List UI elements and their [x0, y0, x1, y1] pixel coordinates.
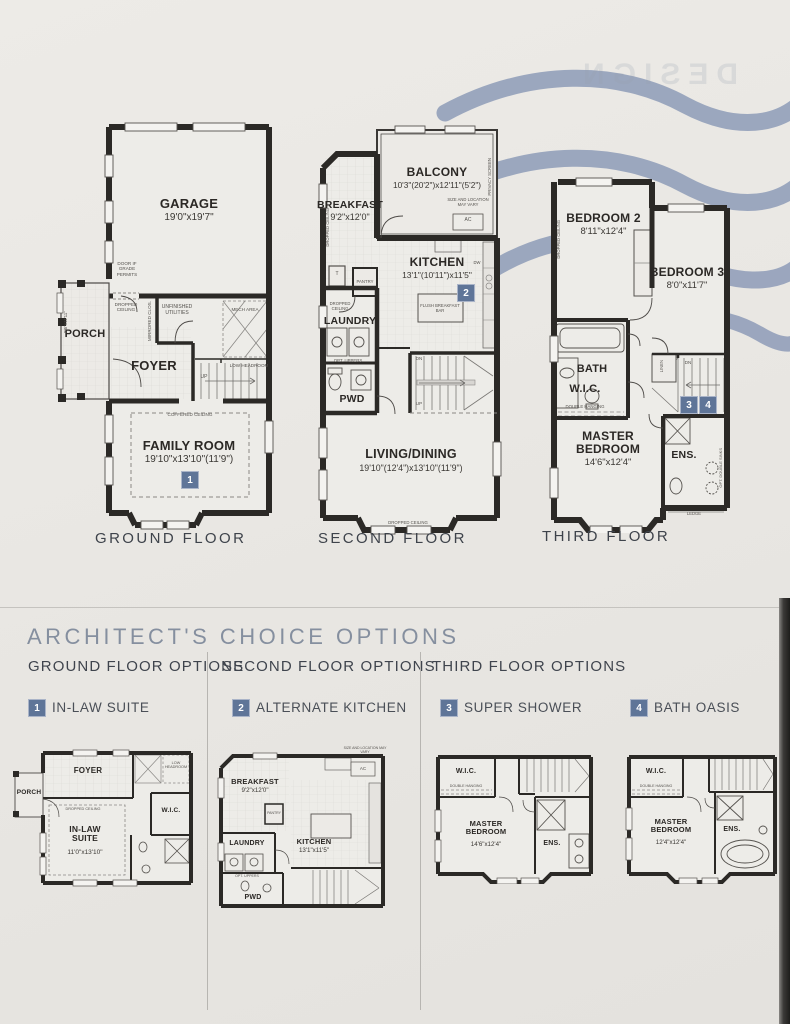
ground-floor-label: GROUND FLOOR [95, 530, 246, 547]
ground-floor-plan: GARAGE 19'0"x19'7" DOOR IF GRADE PERMITS… [55, 113, 290, 537]
altk-pantry-label: PANTRY [261, 811, 287, 815]
dn-note: DN [680, 360, 696, 365]
option-item-3-badge: 3 [440, 699, 458, 717]
inlaw-suite-plan: PORCH FOYER LOW HEADROOM DROPPED CEILING… [13, 743, 198, 893]
t-closet-label: T [331, 272, 343, 278]
mirrored-closet-note: MIRRORED CLOS. [147, 301, 152, 341]
dn-note: DN [411, 356, 427, 361]
opt-uppers-note: OPT. UPPERS [325, 358, 371, 363]
option-item-4-badge: 4 [630, 699, 648, 717]
third-options-header: THIRD FLOOR OPTIONS [432, 658, 626, 675]
ac-label: AC [453, 218, 483, 224]
bo-master-dims: 12'4"x12'4" [639, 840, 703, 847]
inlaw-suite-dims: 11'0"x13'10" [45, 849, 125, 856]
double-hanging-note: DOUBLE HANGING [556, 404, 614, 409]
ss-master-label: MASTER BEDROOM [455, 820, 517, 836]
mech-area-note: MECH AREA [225, 307, 265, 312]
option-item-1-label: IN-LAW SUITE [52, 700, 149, 715]
second-options-header: SECOND FLOOR OPTIONS [222, 658, 436, 675]
living-dining-label: LIVING/DINING [325, 448, 497, 462]
garage-dims: 19'0"x19'7" [129, 213, 249, 224]
unfinished-utilities-note: UNFINISHED UTILITIES [157, 305, 197, 317]
option-item-1-badge: 1 [28, 699, 46, 717]
option-item-3-label: SUPER SHOWER [464, 700, 582, 715]
up-note: UP [196, 375, 212, 381]
super-shower-drawing [423, 742, 598, 884]
altk-breakfast-label: BREAKFAST [221, 778, 289, 786]
ledge-note: LEDGE [674, 512, 714, 517]
bleed-through-text: DESIGN [575, 58, 738, 92]
coffered-ceiling-note: COFFERED CEILING [147, 412, 233, 417]
inlaw-porch-label: PORCH [15, 789, 43, 796]
option-item-2-label: ALTERNATE KITCHEN [256, 700, 407, 715]
bedroom3-dims: 8'0"x11'7" [646, 281, 728, 291]
option-3-badge: 3 [680, 396, 698, 414]
inlaw-foyer-label: FOYER [58, 767, 118, 776]
master-bedroom-label: MASTER BEDROOM [570, 430, 646, 456]
opt-sinks-note: OPT. DOUBLE SINKS [719, 448, 724, 488]
bedroom2-label: BEDROOM 2 [556, 212, 651, 225]
altk-kitchen-dims: 13'1"x11'5" [285, 848, 343, 855]
altk-optuppers-note: OPT. UPPERS [221, 874, 273, 878]
third-floor-plan: BEDROOM 2 8'11"x12'4" DROPPED CEILING BE… [528, 168, 733, 533]
ac-note: SIZE AND LOCATION MAY VARY [445, 198, 491, 208]
family-room-label: FAMILY ROOM [112, 439, 266, 453]
super-shower-plan: W.I.C. DOUBLE HANGING MASTER BEDROOM 14'… [423, 742, 598, 884]
photo-edge-shadow [779, 598, 790, 1024]
altk-kitchen-label: KITCHEN [285, 838, 343, 846]
dw-note: DW [470, 261, 484, 266]
bed2-dropped-note: DROPPED CEILING [557, 220, 562, 259]
third-floor-label: THIRD FLOOR [542, 528, 670, 545]
living-dining-dims: 19'10"(12'4")x13'10"(11'9") [325, 464, 497, 474]
alternate-kitchen-drawing [213, 738, 398, 908]
bath-label: BATH [564, 364, 620, 376]
linen-note: LINEN [660, 360, 665, 372]
flush-bar-note: FLUSH BREAKFAST BAR [416, 304, 464, 314]
ss-wic-label: W.I.C. [441, 768, 491, 776]
brochure-page: DESIGN [0, 0, 790, 1024]
pantry-label: PANTRY [352, 279, 378, 284]
second-floor-label: SECOND FLOOR [318, 530, 467, 547]
ground-floor-plan-drawing [55, 113, 290, 537]
bo-hanging-note: DOUBLE HANGING [632, 784, 680, 788]
balcony-label: BALCONY [387, 166, 487, 179]
bedroom3-label: BEDROOM 3 [646, 266, 728, 279]
column-divider-1 [207, 652, 208, 1010]
option-item-2-badge: 2 [232, 699, 250, 717]
wic-label: W.I.C. [556, 384, 614, 396]
bath-oasis-plan: W.I.C. DOUBLE HANGING MASTER BEDROOM 12'… [617, 742, 782, 884]
option-2-badge: 2 [457, 284, 475, 302]
master-bedroom-dims: 14'6"x12'4" [558, 458, 658, 468]
up-note: UP [411, 401, 427, 406]
pwd-label: PWD [329, 394, 375, 405]
bedroom2-dims: 8'11"x12'4" [556, 227, 651, 237]
ss-master-dims: 14'6"x12'4" [453, 842, 519, 849]
inlaw-dropped-note: DROPPED CEILING [53, 807, 113, 811]
ss-hanging-note: DOUBLE HANGING [441, 784, 491, 788]
bath-oasis-drawing [617, 742, 782, 884]
option-item-4-label: BATH OASIS [654, 700, 740, 715]
porch-dims: 8'6"x11'11" [63, 311, 68, 333]
balcony-dims: 10'3"(20'2")x12'11"(5'2") [377, 181, 497, 190]
alternate-kitchen-plan: BREAKFAST 9'2"x12'0" SIZE AND LOCATION M… [213, 738, 398, 908]
ens-label: ENS. [664, 450, 704, 461]
bo-ens-label: ENS. [715, 826, 749, 834]
column-divider-2 [420, 652, 421, 1010]
family-room-dims: 19'10"x13'10"(11'9") [112, 455, 266, 466]
inlaw-wic-label: W.I.C. [153, 807, 189, 814]
kitchen-dims: 13'1"(10'11")x11'5" [382, 271, 492, 280]
laundry-dropped-note: DROPPED CEILING [325, 302, 355, 312]
option-1-badge: 1 [181, 471, 199, 489]
living-dropped-note: DROPPED CEILING [363, 520, 453, 525]
altk-pwd-label: PWD [233, 894, 273, 902]
ss-ens-label: ENS. [535, 840, 569, 848]
altk-breakfast-dims: 9'2"x12'0" [221, 788, 289, 795]
altk-ac-label: AC [351, 766, 375, 771]
altk-laundry-label: LAUNDRY [221, 840, 273, 848]
breakfast-dropped-note: DROPPED CEILING [326, 208, 331, 247]
inlaw-lowheadroom-note: LOW HEADROOM [161, 761, 191, 770]
second-floor-plan: BALCONY 10'3"(20'2")x12'11"(5'2") PRIVAC… [315, 118, 505, 542]
door-grade-note: DOOR IF GRADE PERMITS [109, 261, 145, 277]
bo-master-label: MASTER BEDROOM [645, 818, 697, 834]
dropped-ceiling-note: DROPPED CEILING [110, 302, 142, 313]
altk-ac-note: SIZE AND LOCATION MAY VARY [343, 746, 387, 754]
options-section-title: ARCHITECT'S CHOICE OPTIONS [27, 624, 460, 650]
ground-options-header: GROUND FLOOR OPTIONS [28, 658, 244, 675]
privacy-screen-note: PRIVACY SCREEN [487, 158, 492, 196]
option-4-badge: 4 [699, 396, 717, 414]
low-headroom-note: LOW HEADROOM [229, 363, 269, 368]
garage-label: GARAGE [129, 197, 249, 211]
foyer-label: FOYER [115, 359, 193, 373]
bo-wic-label: W.I.C. [632, 768, 680, 776]
section-divider [0, 607, 790, 608]
laundry-label: LAUNDRY [319, 316, 381, 327]
inlaw-suite-label: IN-LAW SUITE [61, 825, 109, 843]
